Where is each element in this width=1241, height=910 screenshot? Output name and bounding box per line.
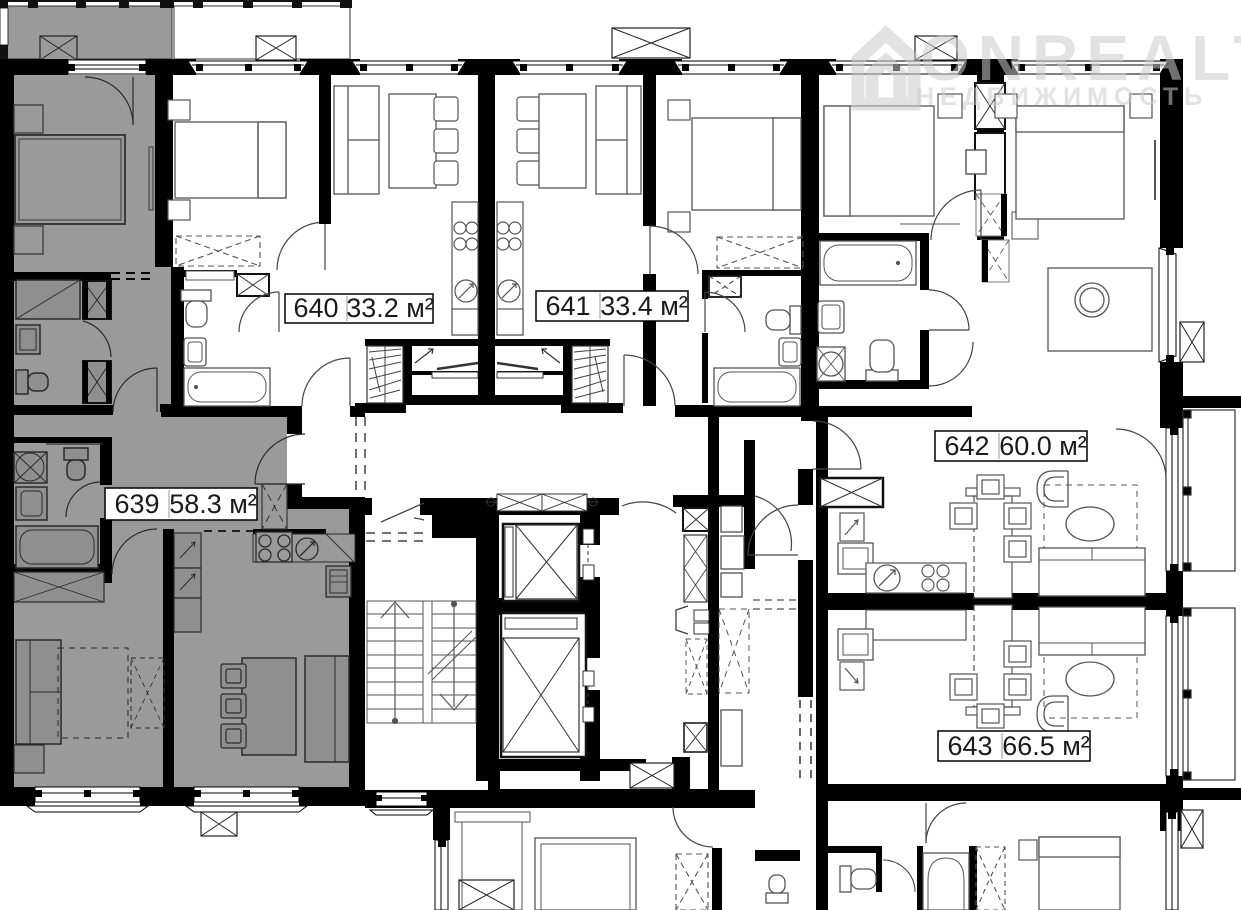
svg-text:639: 639: [114, 489, 159, 519]
svg-text:33.4 м²: 33.4 м²: [600, 291, 688, 321]
svg-text:НЕДВИЖИМОСТЬ: НЕДВИЖИМОСТЬ: [916, 83, 1208, 111]
svg-text:642: 642: [944, 431, 989, 461]
svg-text:58.3 м²: 58.3 м²: [169, 489, 257, 519]
svg-text:643: 643: [947, 731, 992, 761]
svg-text:33.2 м²: 33.2 м²: [346, 293, 434, 323]
svg-text:60.0 м²: 60.0 м²: [999, 431, 1087, 461]
svg-text:66.5 м²: 66.5 м²: [1002, 731, 1090, 761]
svg-text:640: 640: [293, 293, 338, 323]
svg-text:641: 641: [545, 291, 590, 321]
